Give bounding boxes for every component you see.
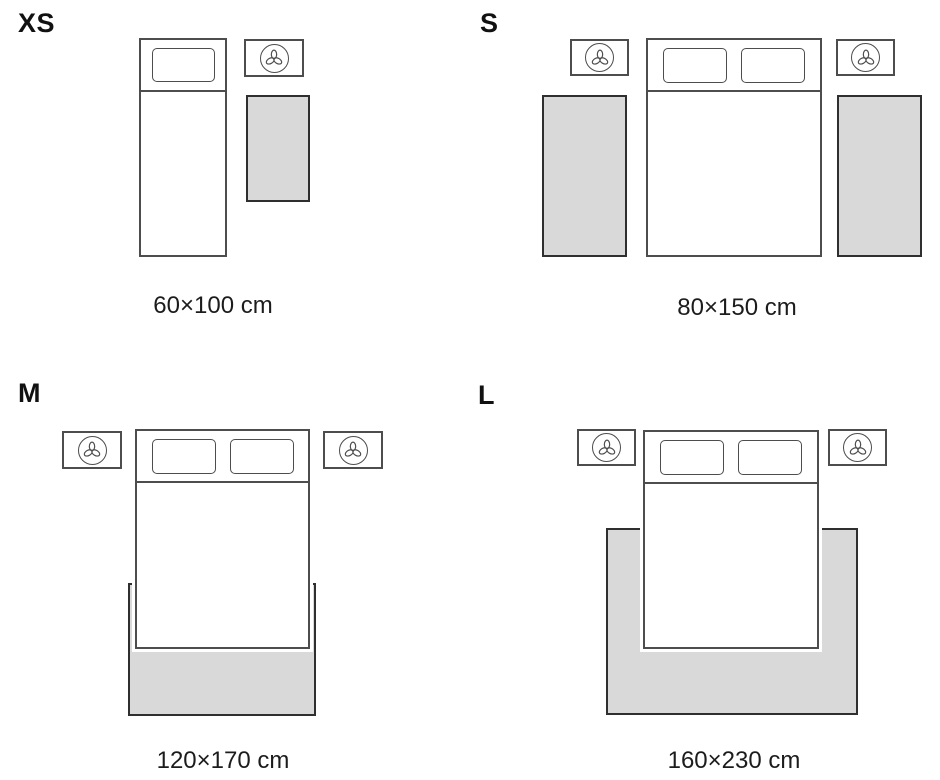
bed-headboard	[648, 40, 820, 92]
size-caption-m: 120×170 cm	[123, 748, 323, 774]
size-label-m: M	[18, 380, 41, 407]
plant-icon	[339, 436, 368, 465]
size-caption-s: 80×150 cm	[637, 295, 837, 321]
size-label-xs: XS	[18, 10, 55, 37]
section-xs: XS 60×100 cm	[0, 0, 470, 370]
plant-icon	[260, 44, 289, 73]
pillow-left	[660, 440, 724, 475]
bed-double	[135, 429, 310, 649]
rug-left	[542, 95, 627, 257]
bed-double	[643, 430, 819, 649]
nightstand	[244, 39, 304, 77]
pillow-left	[663, 48, 727, 83]
rug	[246, 95, 310, 202]
size-caption-l: 160×230 cm	[634, 748, 834, 774]
section-s: S	[470, 0, 940, 370]
size-label-l: L	[478, 382, 495, 409]
pillow-right	[738, 440, 802, 475]
bed-headboard	[137, 431, 308, 483]
pillow-right	[230, 439, 294, 474]
bed-headboard	[141, 40, 225, 92]
plant-icon	[843, 433, 872, 462]
plant-icon	[851, 43, 880, 72]
nightstand-left	[577, 429, 636, 466]
plant-icon	[585, 43, 614, 72]
rug-right	[837, 95, 922, 257]
nightstand-right	[836, 39, 895, 76]
size-label-s: S	[480, 10, 499, 37]
section-l: L	[470, 370, 940, 780]
nightstand-right	[323, 431, 383, 469]
plant-icon	[592, 433, 621, 462]
bed-double	[646, 38, 822, 257]
nightstand-left	[62, 431, 122, 469]
pillow-right	[741, 48, 805, 83]
rug-size-guide: XS 60×100 cm S	[0, 0, 940, 780]
pillow	[152, 48, 215, 82]
nightstand-right	[828, 429, 887, 466]
size-caption-xs: 60×100 cm	[113, 293, 313, 319]
nightstand-left	[570, 39, 629, 76]
section-m: M	[0, 370, 470, 780]
bed-headboard	[645, 432, 817, 484]
bed-single	[139, 38, 227, 257]
pillow-left	[152, 439, 216, 474]
plant-icon	[78, 436, 107, 465]
